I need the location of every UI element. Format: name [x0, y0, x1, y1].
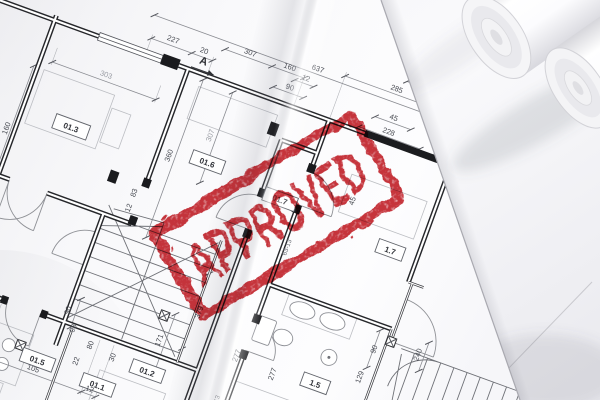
photo-stage: A 01.3 01.6 01.7 1.7 01.2 01.5 01.1: [0, 0, 600, 400]
blueprint-photo: A 01.3 01.6 01.7 1.7 01.2 01.5 01.1: [0, 0, 600, 400]
